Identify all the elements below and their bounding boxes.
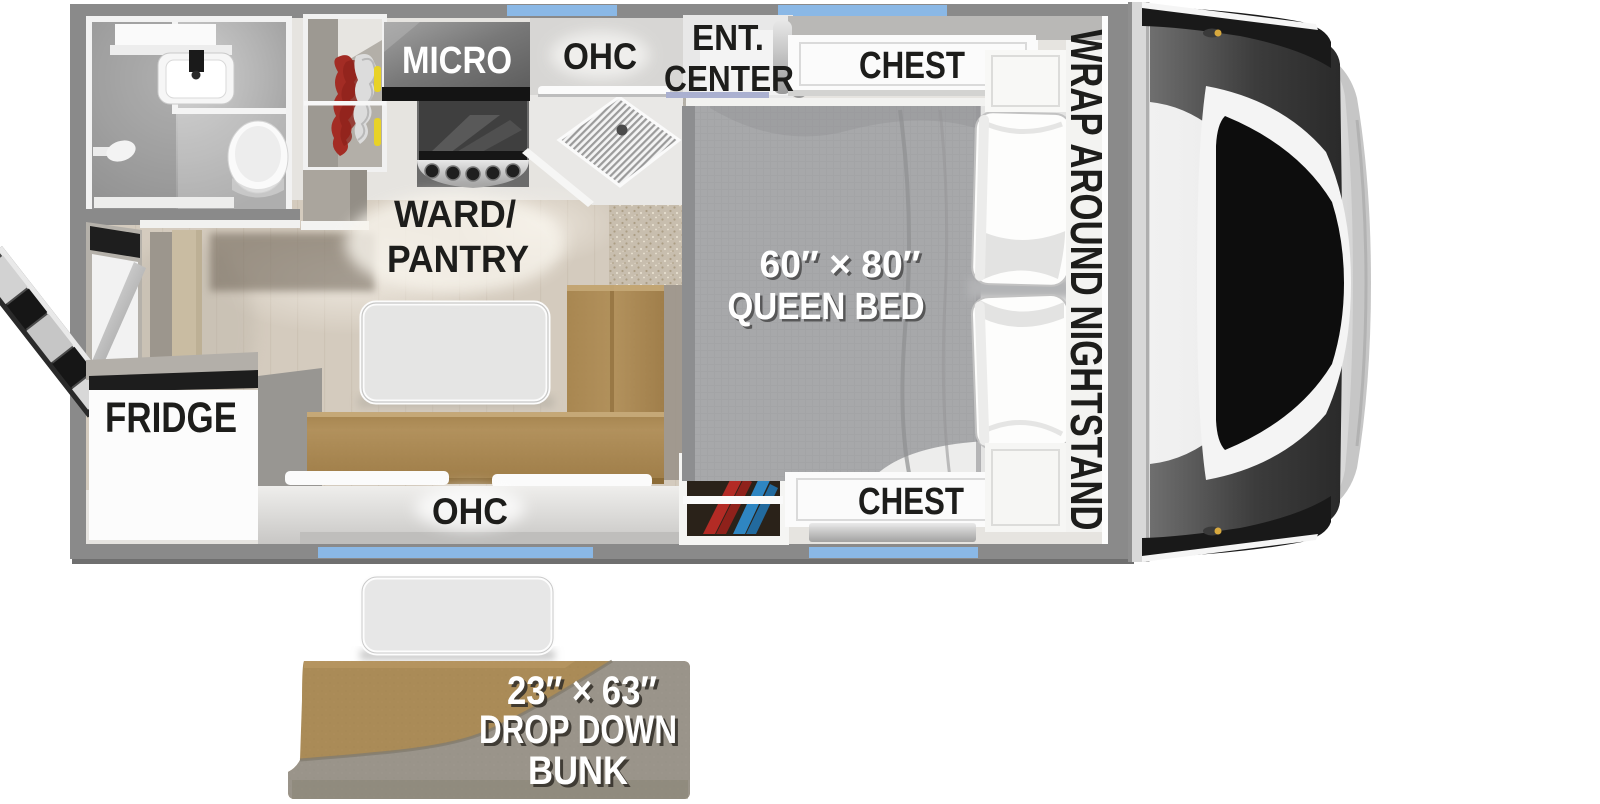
svg-text:60″ × 80″: 60″ × 80″: [760, 244, 921, 286]
svg-text:CHEST: CHEST: [859, 45, 965, 87]
svg-text:FRIDGE: FRIDGE: [105, 394, 237, 442]
svg-text:OHC: OHC: [432, 491, 508, 532]
svg-text:DROP DOWN: DROP DOWN: [479, 708, 677, 752]
svg-text:BUNK: BUNK: [528, 749, 628, 793]
svg-text:WARD/: WARD/: [394, 194, 516, 236]
svg-text:ENT.: ENT.: [692, 17, 764, 58]
svg-text:PANTRY: PANTRY: [387, 239, 529, 281]
svg-text:CHEST: CHEST: [858, 481, 964, 523]
svg-text:23″ × 63″: 23″ × 63″: [507, 669, 657, 713]
svg-text:CENTER: CENTER: [664, 58, 794, 99]
svg-text:MICRO: MICRO: [402, 40, 512, 82]
svg-text:QUEEN BED: QUEEN BED: [728, 286, 925, 328]
svg-text:OHC: OHC: [563, 36, 637, 77]
